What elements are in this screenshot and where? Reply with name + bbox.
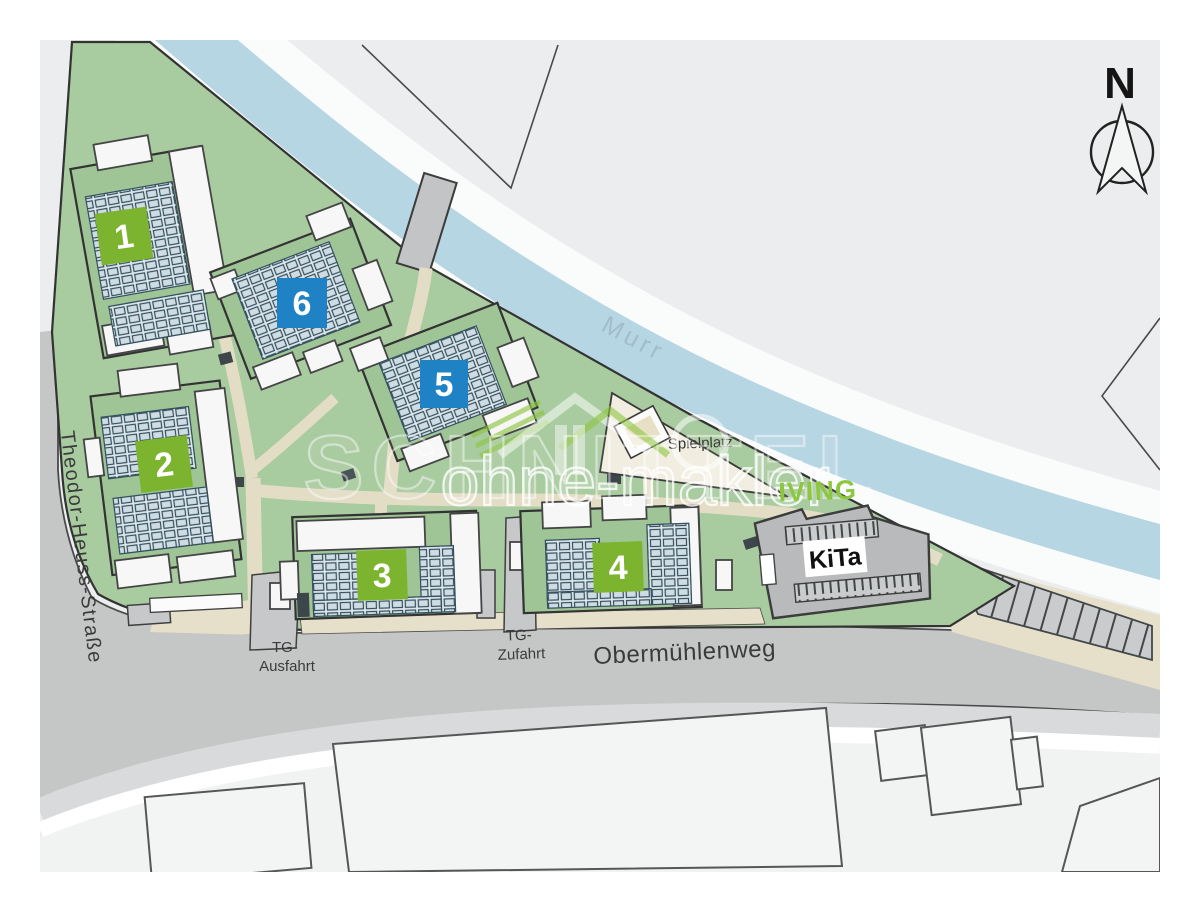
badge-3: 3 — [356, 549, 408, 601]
svg-text:5: 5 — [435, 366, 454, 404]
badge-5: 5 — [420, 360, 468, 408]
badge-1: 1 — [95, 207, 154, 266]
watermark-green-text: IVING — [778, 475, 858, 508]
neighbor-building-south-right-attach — [1011, 737, 1043, 790]
svg-text:3: 3 — [372, 557, 392, 596]
north-label: N — [1104, 59, 1136, 108]
solar-panels — [647, 523, 692, 604]
kita-label: KiTa — [808, 542, 864, 575]
neighbor-building-south-right-mid — [921, 717, 1021, 815]
badge-2: 2 — [135, 435, 193, 493]
solar-panels — [113, 487, 213, 554]
svg-text:6: 6 — [293, 285, 312, 323]
badge-6: 6 — [277, 278, 327, 328]
badge-4: 4 — [592, 541, 644, 593]
site-plan-map: Murr — [0, 0, 1200, 900]
site-plan-page: Murr — [0, 0, 1200, 900]
svg-text:4: 4 — [608, 549, 628, 588]
watermark-listing-text: ohne-makler — [440, 442, 829, 520]
kita-side-box — [716, 560, 732, 590]
neighbor-building-south-left — [145, 783, 312, 882]
garage-door — [297, 593, 310, 617]
